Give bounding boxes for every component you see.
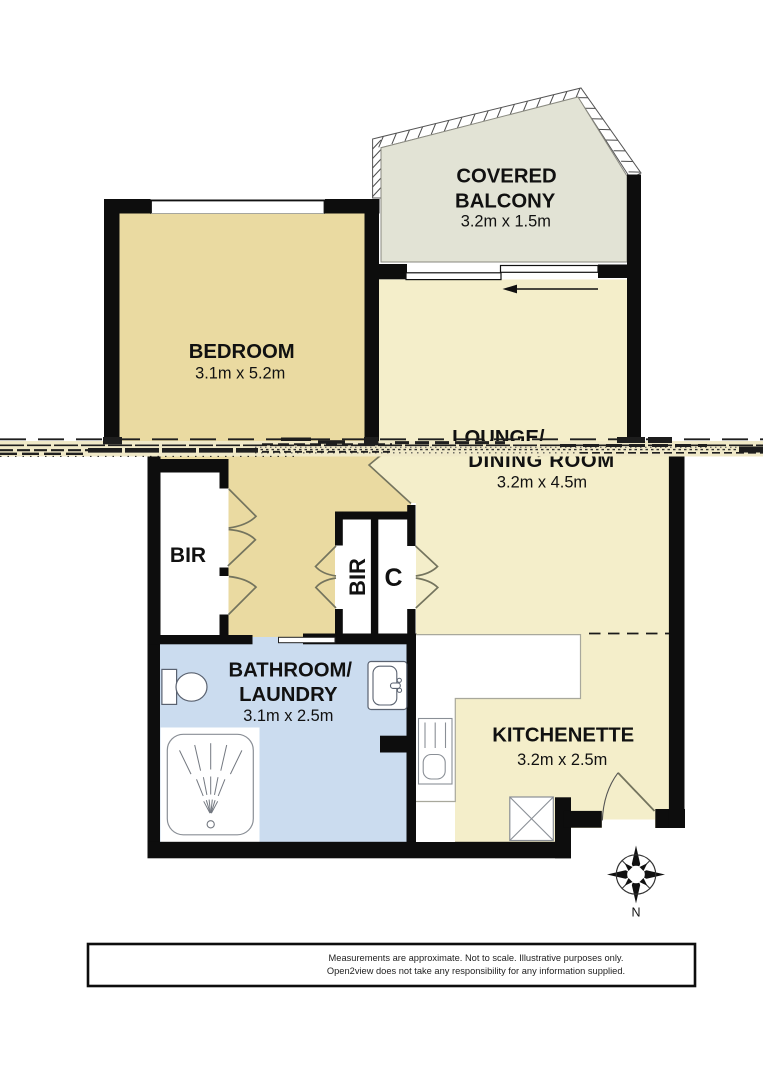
svg-text:BEDROOM: BEDROOM [189, 341, 295, 363]
svg-text:N: N [631, 906, 640, 920]
svg-text:3.2m x 4.5m: 3.2m x 4.5m [497, 474, 587, 492]
svg-text:C: C [384, 564, 402, 592]
svg-text:BALCONY: BALCONY [455, 190, 556, 212]
svg-text:BIR: BIR [345, 558, 370, 596]
svg-text:LAUNDRY: LAUNDRY [239, 684, 338, 706]
svg-text:KITCHENETTE: KITCHENETTE [492, 725, 634, 747]
svg-text:3.2m x 1.5m: 3.2m x 1.5m [461, 213, 551, 231]
svg-text:3.1m x 2.5m: 3.1m x 2.5m [243, 707, 333, 725]
svg-text:3.1m x 5.2m: 3.1m x 5.2m [195, 365, 285, 383]
svg-text:COVERED: COVERED [456, 166, 556, 188]
svg-text:Measurements are approximate.: Measurements are approximate. Not to sca… [329, 953, 624, 963]
svg-text:BATHROOM/: BATHROOM/ [229, 660, 353, 682]
svg-text:Open2view does not take any re: Open2view does not take any responsibili… [327, 966, 625, 976]
svg-text:BIR: BIR [170, 544, 206, 567]
svg-text:3.2m x 2.5m: 3.2m x 2.5m [517, 751, 607, 769]
